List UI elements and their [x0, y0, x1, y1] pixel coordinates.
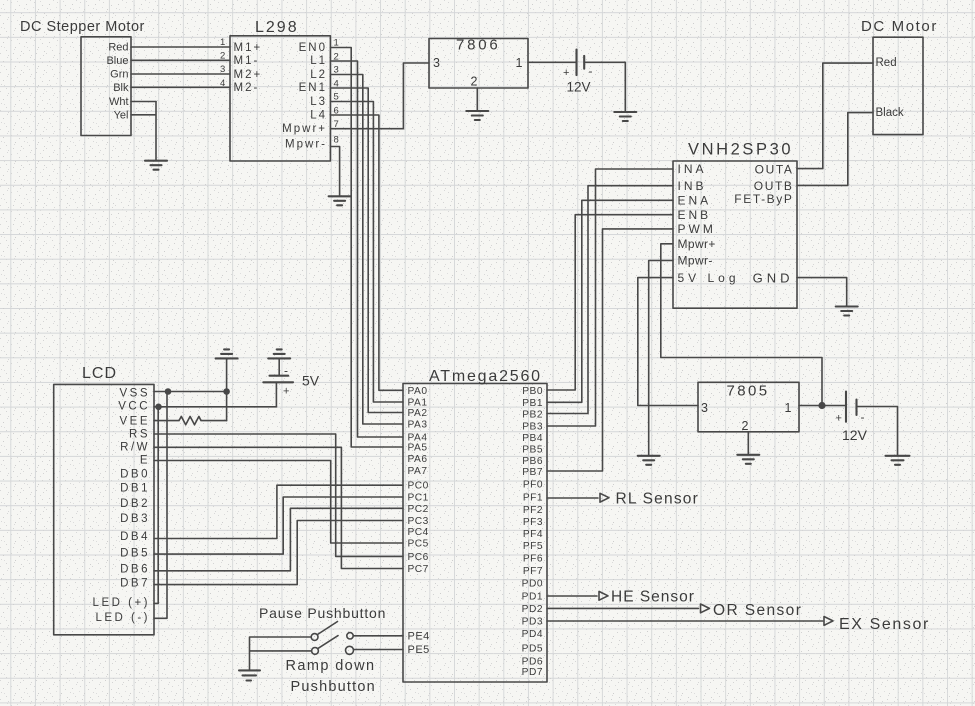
svg-text:7806: 7806 — [456, 37, 501, 54]
svg-text:Black: Black — [876, 107, 904, 119]
svg-text:Pushbutton: Pushbutton — [291, 679, 376, 695]
svg-text:Mpwr-: Mpwr- — [678, 254, 713, 268]
svg-text:4: 4 — [334, 79, 339, 90]
svg-text:L4: L4 — [310, 109, 327, 121]
svg-text:L3: L3 — [310, 96, 327, 108]
svg-text:L298: L298 — [255, 19, 299, 36]
svg-text:+: + — [836, 413, 842, 425]
svg-text:ENB: ENB — [678, 208, 712, 222]
svg-text:PE5: PE5 — [408, 644, 430, 656]
svg-text:Grn: Grn — [110, 69, 128, 81]
svg-text:VEE: VEE — [119, 415, 150, 427]
svg-text:PA3: PA3 — [408, 420, 428, 431]
svg-text:PB7: PB7 — [522, 467, 543, 478]
svg-text:PB2: PB2 — [522, 410, 543, 421]
svg-text:PB0: PB0 — [522, 386, 543, 397]
svg-text:PD5: PD5 — [522, 644, 543, 655]
svg-text:ATmega2560: ATmega2560 — [429, 368, 542, 385]
svg-text:PC5: PC5 — [408, 539, 429, 550]
svg-text:-: - — [284, 364, 288, 378]
svg-text:8: 8 — [334, 135, 339, 146]
svg-text:DC Motor: DC Motor — [861, 18, 938, 35]
svg-text:PC1: PC1 — [408, 493, 429, 504]
svg-text:LED (-): LED (-) — [95, 612, 150, 624]
svg-text:Wht: Wht — [109, 96, 129, 108]
svg-text:HE Sensor: HE Sensor — [611, 589, 695, 606]
svg-text:PC3: PC3 — [408, 516, 429, 527]
svg-text:PC4: PC4 — [408, 527, 429, 538]
svg-text:3: 3 — [334, 65, 339, 76]
svg-text:Mpwr+: Mpwr+ — [282, 123, 327, 135]
svg-text:-: - — [861, 410, 865, 424]
svg-text:7: 7 — [334, 119, 339, 130]
svg-text:PC0: PC0 — [408, 481, 429, 492]
svg-text:Mpwr-: Mpwr- — [285, 139, 327, 151]
svg-text:PD4: PD4 — [522, 629, 543, 640]
svg-text:RS: RS — [129, 429, 150, 441]
svg-text:PB3: PB3 — [522, 421, 543, 432]
svg-text:L1: L1 — [310, 55, 327, 67]
svg-text:L2: L2 — [310, 69, 327, 81]
svg-text:VCC: VCC — [118, 401, 150, 413]
svg-text:VNH2SP30: VNH2SP30 — [688, 141, 793, 159]
svg-text:M1-: M1- — [234, 55, 260, 67]
svg-text:EN1: EN1 — [299, 82, 327, 94]
svg-text:DB0: DB0 — [120, 468, 150, 480]
svg-text:GND: GND — [753, 270, 794, 285]
svg-text:4: 4 — [220, 78, 225, 89]
svg-text:Ramp down: Ramp down — [286, 658, 376, 674]
svg-text:7805: 7805 — [727, 383, 770, 400]
svg-text:2: 2 — [220, 51, 225, 62]
svg-text:PA0: PA0 — [408, 386, 428, 397]
svg-text:1: 1 — [220, 37, 225, 48]
svg-text:EX Sensor: EX Sensor — [839, 616, 930, 633]
svg-text:VSS: VSS — [119, 387, 150, 399]
svg-text:1: 1 — [785, 401, 792, 415]
svg-text:Blk: Blk — [113, 82, 129, 94]
svg-text:PWM: PWM — [678, 222, 716, 236]
svg-text:DB5: DB5 — [120, 548, 150, 560]
svg-text:5V Log: 5V Log — [678, 271, 740, 285]
svg-text:PA1: PA1 — [408, 398, 428, 409]
svg-text:2: 2 — [742, 419, 749, 433]
svg-text:PD1: PD1 — [522, 592, 543, 603]
svg-text:1: 1 — [516, 56, 523, 70]
svg-text:PA5: PA5 — [408, 443, 428, 454]
svg-text:OUTA: OUTA — [755, 162, 794, 176]
svg-text:2: 2 — [471, 75, 478, 89]
svg-text:PF7: PF7 — [523, 566, 543, 577]
svg-text:PA7: PA7 — [408, 466, 428, 477]
svg-text:DB6: DB6 — [120, 563, 150, 575]
svg-text:FET-ByP: FET-ByP — [734, 192, 793, 206]
svg-text:PD3: PD3 — [522, 617, 543, 628]
svg-text:PF1: PF1 — [523, 493, 543, 504]
svg-text:5V: 5V — [302, 373, 320, 389]
svg-text:EN0: EN0 — [299, 42, 327, 54]
svg-text:DB7: DB7 — [120, 578, 150, 590]
svg-text:PA2: PA2 — [408, 408, 428, 419]
svg-text:PC2: PC2 — [408, 504, 429, 515]
svg-text:PF3: PF3 — [523, 517, 543, 528]
svg-text:Red: Red — [108, 42, 128, 54]
svg-text:INB: INB — [678, 179, 707, 193]
svg-text:Red: Red — [876, 57, 897, 69]
svg-text:PC6: PC6 — [408, 552, 429, 563]
svg-text:R/W: R/W — [120, 442, 150, 454]
svg-text:PF5: PF5 — [523, 541, 543, 552]
svg-text:LED (+): LED (+) — [93, 597, 150, 609]
svg-text:PD0: PD0 — [522, 579, 543, 590]
svg-text:M1+: M1+ — [234, 42, 263, 54]
svg-text:1: 1 — [334, 38, 339, 49]
svg-text:M2-: M2- — [234, 82, 260, 94]
svg-text:-: - — [589, 64, 593, 78]
svg-text:DB4: DB4 — [120, 531, 150, 543]
svg-text:Mpwr+: Mpwr+ — [678, 237, 716, 251]
svg-text:DB2: DB2 — [120, 498, 150, 510]
svg-text:PF2: PF2 — [523, 505, 543, 516]
svg-text:3: 3 — [701, 401, 708, 415]
svg-text:DC Stepper Motor: DC Stepper Motor — [20, 19, 145, 35]
svg-text:PF4: PF4 — [523, 529, 543, 540]
svg-text:PD2: PD2 — [522, 604, 543, 615]
svg-text:INA: INA — [678, 162, 707, 176]
svg-text:3: 3 — [433, 56, 440, 70]
svg-text:PC7: PC7 — [408, 564, 429, 575]
svg-text:5: 5 — [334, 92, 339, 103]
svg-text:DB3: DB3 — [120, 513, 150, 525]
svg-text:M2+: M2+ — [234, 69, 263, 81]
svg-text:PB6: PB6 — [522, 456, 543, 467]
svg-text:PF0: PF0 — [523, 480, 543, 491]
svg-text:ENA: ENA — [678, 194, 712, 208]
svg-text:E: E — [140, 455, 150, 467]
svg-text:2: 2 — [334, 52, 339, 63]
svg-text:Pause Pushbutton: Pause Pushbutton — [259, 605, 386, 621]
svg-text:OR Sensor: OR Sensor — [713, 602, 802, 619]
svg-text:Yel: Yel — [114, 109, 129, 121]
svg-text:Blue: Blue — [106, 55, 128, 67]
svg-text:+: + — [283, 386, 289, 398]
svg-text:12V: 12V — [567, 80, 591, 95]
svg-text:PB1: PB1 — [522, 398, 543, 409]
svg-text:PD6: PD6 — [522, 657, 543, 668]
svg-text:3: 3 — [220, 64, 225, 75]
svg-text:RL Sensor: RL Sensor — [616, 491, 699, 508]
svg-text:12V: 12V — [842, 427, 868, 443]
svg-text:PA6: PA6 — [408, 454, 428, 465]
svg-text:PB4: PB4 — [522, 433, 543, 444]
svg-text:6: 6 — [334, 106, 339, 117]
svg-text:DB1: DB1 — [120, 483, 150, 495]
svg-text:PE4: PE4 — [408, 631, 430, 643]
svg-text:LCD: LCD — [82, 365, 117, 382]
svg-text:PF6: PF6 — [523, 554, 543, 565]
svg-text:+: + — [563, 67, 569, 79]
svg-text:PB5: PB5 — [522, 445, 543, 456]
svg-text:PD7: PD7 — [522, 667, 543, 678]
